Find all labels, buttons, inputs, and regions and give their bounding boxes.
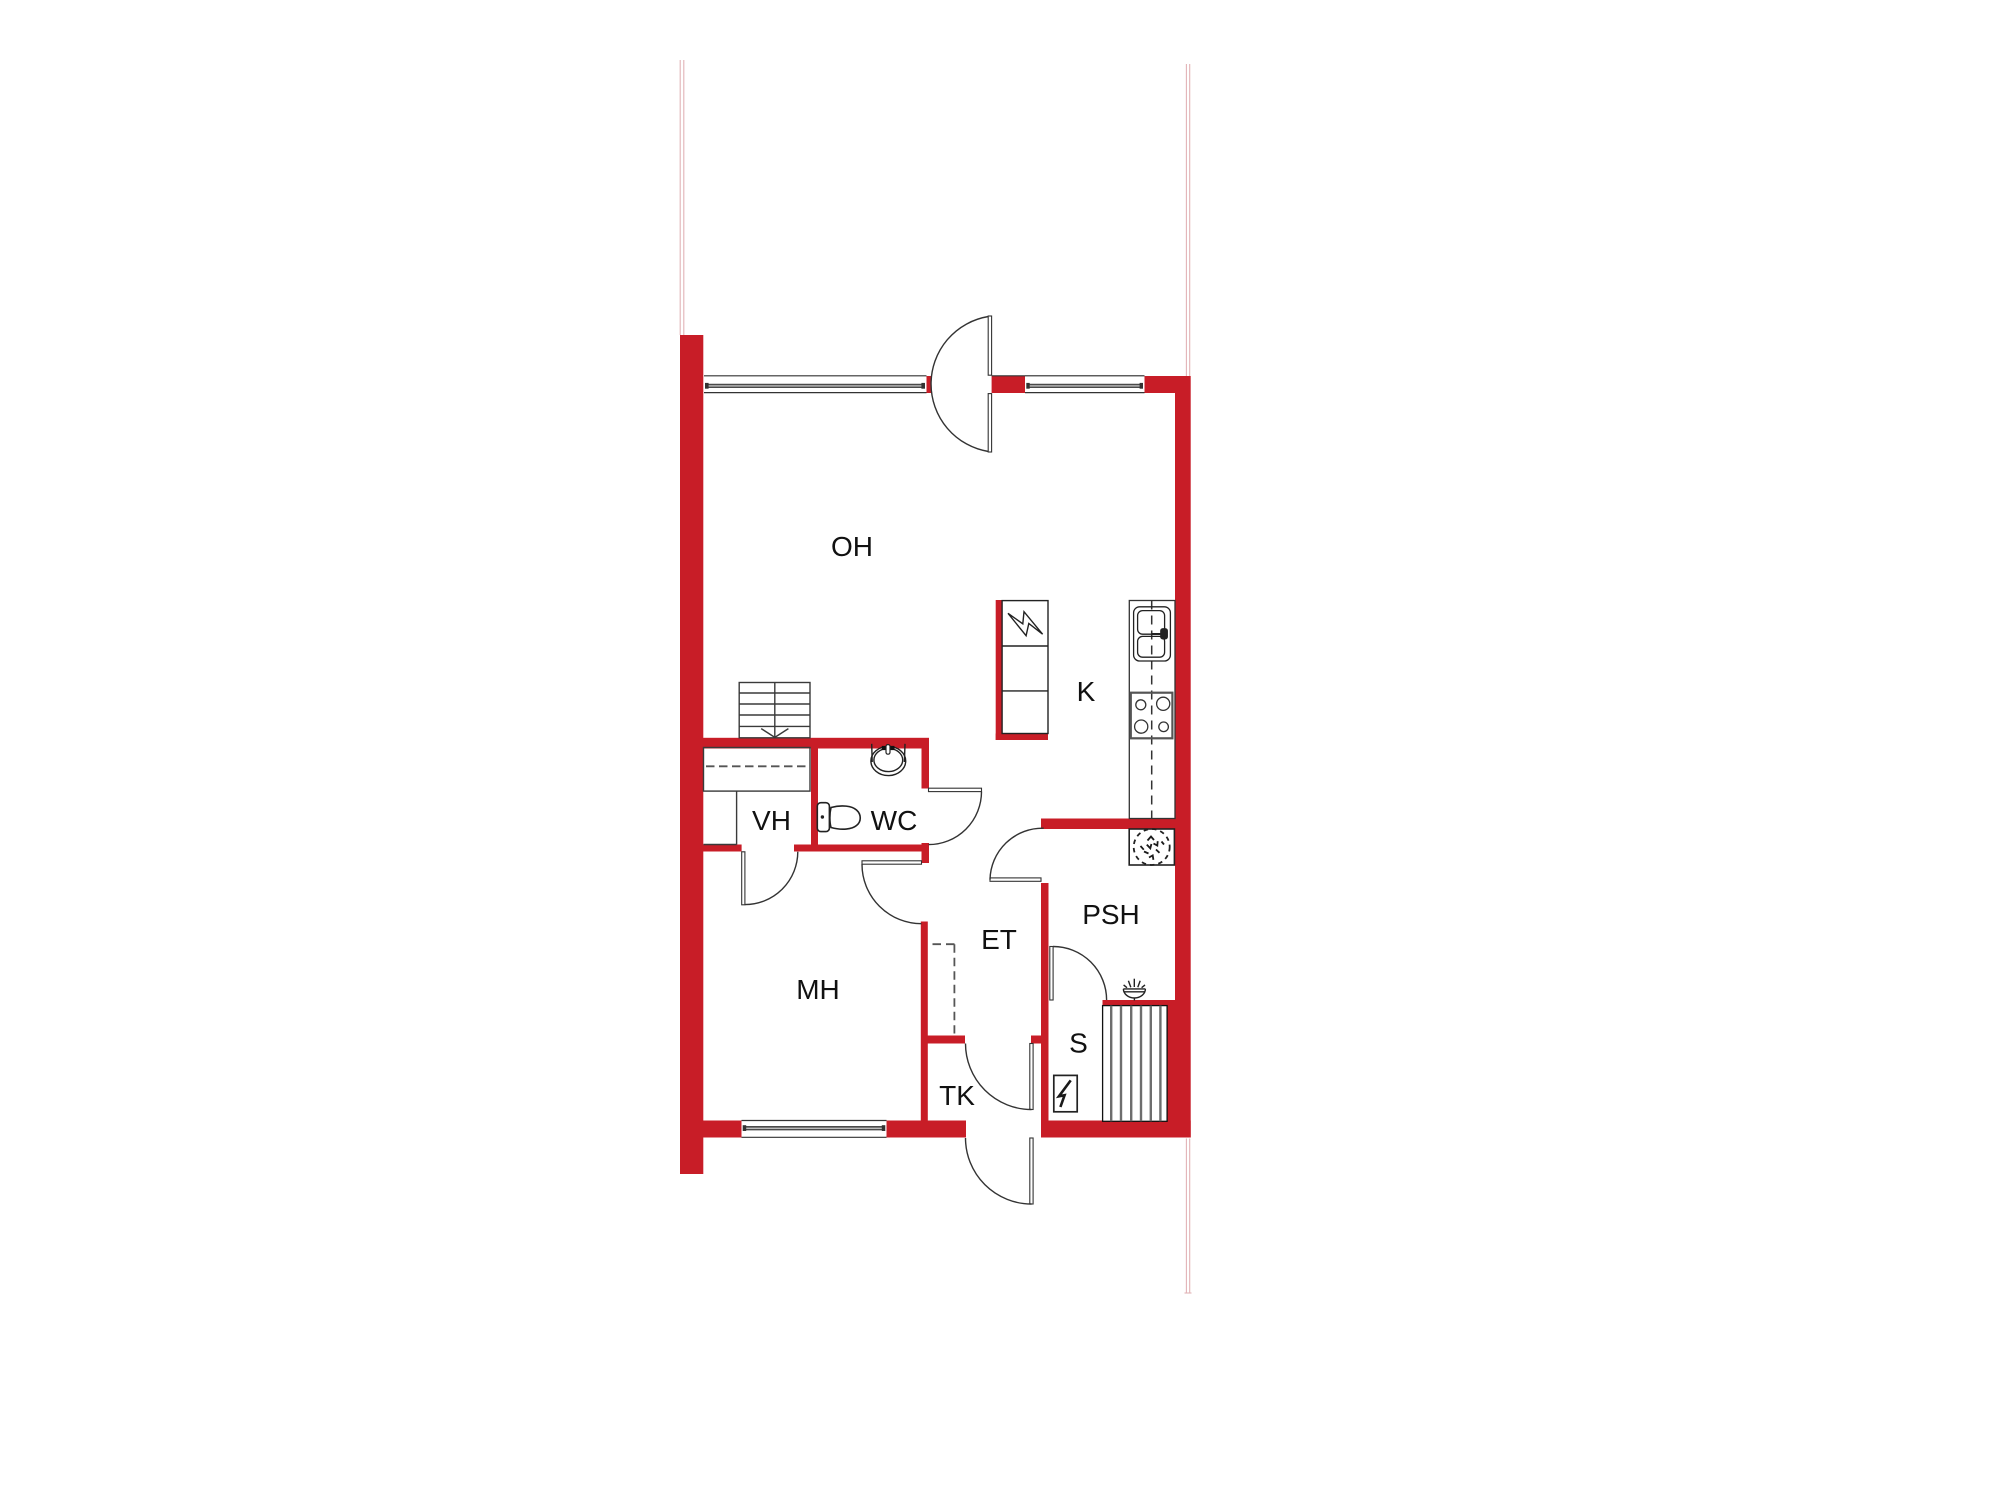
svg-text:VH: VH bbox=[752, 805, 791, 836]
svg-text:WC: WC bbox=[871, 805, 918, 836]
svg-text:PSH: PSH bbox=[1082, 899, 1140, 930]
svg-text:K: K bbox=[1077, 676, 1096, 707]
svg-text:S: S bbox=[1069, 1028, 1088, 1059]
svg-text:TK: TK bbox=[939, 1080, 975, 1111]
svg-text:MH: MH bbox=[796, 974, 840, 1005]
svg-text:OH: OH bbox=[831, 531, 873, 562]
svg-text:ET: ET bbox=[981, 924, 1017, 955]
